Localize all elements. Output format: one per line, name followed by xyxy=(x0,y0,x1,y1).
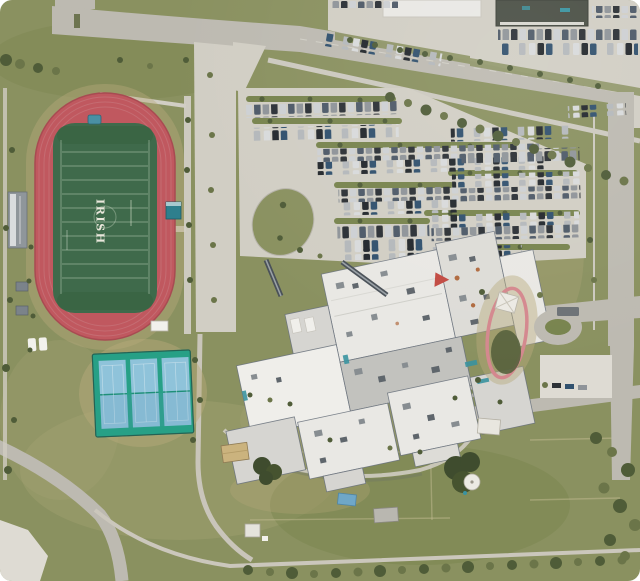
satellite-view: IRISH xyxy=(0,0,640,581)
lighting-overlay xyxy=(0,0,640,581)
campus-aerial-map: IRISH xyxy=(0,0,640,581)
